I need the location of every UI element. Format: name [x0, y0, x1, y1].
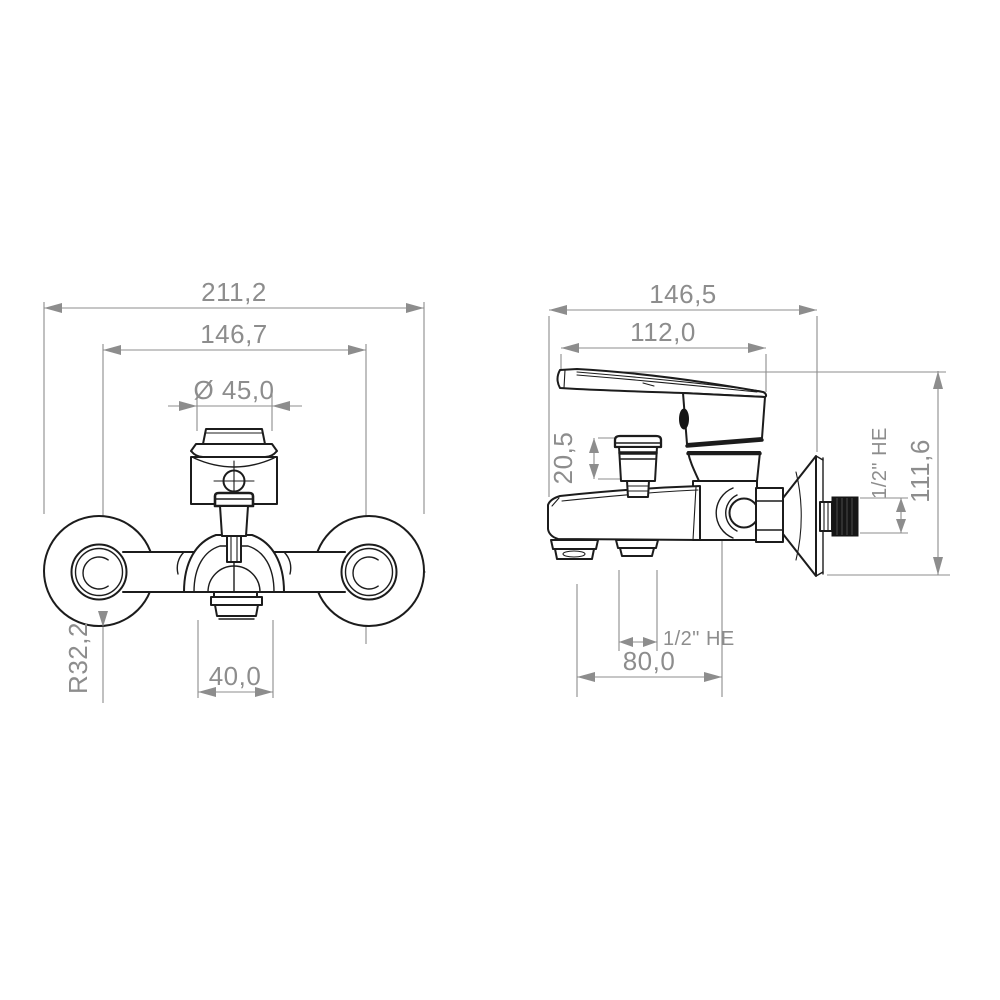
dim-wall-thread: 1/2" HE [869, 427, 906, 533]
dim-label-wall-thread: 1/2" HE [869, 427, 891, 499]
dim-label-overall-depth: 146,5 [649, 279, 717, 309]
dim-label-spout-width: 40,0 [209, 661, 262, 691]
side-view: 146,5 112,0 [548, 279, 950, 697]
dim-label-overall-height: 111,6 [905, 439, 935, 503]
dim-label-flange-radius: R32,2 [63, 622, 93, 694]
dim-handle-reach: 112,0 [561, 317, 766, 353]
lever-handle [558, 369, 767, 397]
dim-overall-height: 111,6 [905, 371, 943, 575]
dim-connection-spacing: 146,7 [103, 319, 366, 355]
wall-connection [756, 456, 858, 576]
dim-label-diverter-height: 20,5 [548, 432, 578, 485]
wall-flange-side [783, 456, 823, 576]
shower-hose-outlet [616, 540, 658, 556]
dim-label-handle-diameter: Ø 45,0 [193, 375, 274, 405]
dim-diverter-height: 20,5 [548, 432, 599, 485]
faucet-dimension-drawing: 211,2 146,7 Ø 45,0 [0, 0, 1000, 1000]
dim-spout-width: 40,0 [198, 661, 273, 697]
spout-side [548, 486, 700, 540]
dim-spout-projection: 80,0 [577, 646, 722, 682]
dim-handle-diameter: Ø 45,0 [168, 375, 302, 411]
flange-hub-left [72, 545, 127, 600]
dim-label-overall-width: 211,2 [201, 277, 267, 307]
flange-hub-right [342, 545, 397, 600]
spout-outlet-front [211, 592, 262, 619]
dim-overall-depth: 146,5 [549, 279, 817, 315]
valve-body-side [693, 481, 759, 540]
aerator-outlet [551, 540, 598, 559]
front-view: 211,2 146,7 Ø 45,0 [44, 277, 426, 703]
dim-label-handle-reach: 112,0 [630, 317, 696, 347]
dim-label-spout-projection: 80,0 [623, 646, 676, 676]
technical-drawing-page: 211,2 146,7 Ø 45,0 [0, 0, 1000, 1000]
hex-nut [756, 488, 783, 542]
dim-label-connection-spacing: 146,7 [200, 319, 268, 349]
handle-button [680, 409, 689, 429]
threaded-stud [832, 497, 858, 536]
handle-hub [680, 393, 766, 481]
dim-overall-width: 211,2 [44, 277, 424, 313]
thread-collar [820, 502, 832, 531]
